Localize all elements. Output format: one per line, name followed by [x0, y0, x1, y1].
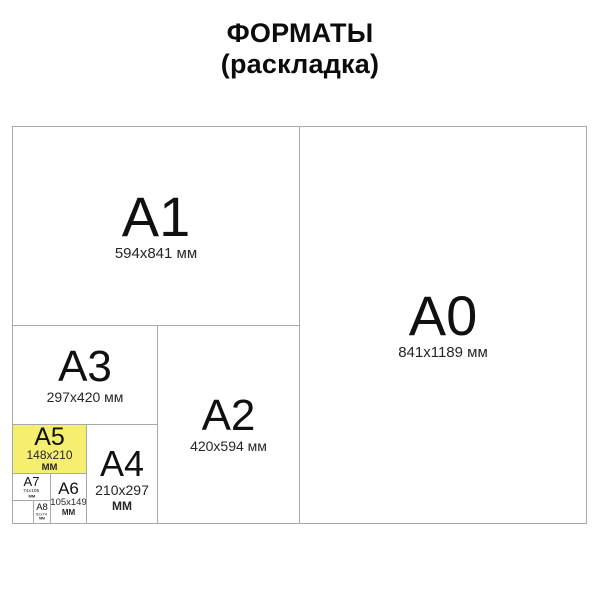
- format-box-a4: A4 210x297 ММ: [86, 424, 158, 524]
- format-label-a1: A1: [122, 189, 191, 245]
- format-box-a1: A1 594x841 мм: [12, 126, 300, 326]
- format-box-a7: A7 74x105 ММ: [12, 473, 51, 501]
- format-unit-a8: ММ: [39, 518, 45, 520]
- format-dims-a8: 52x74: [36, 513, 47, 516]
- format-label-a5: A5: [34, 425, 65, 449]
- format-unit-a6: ММ: [62, 508, 75, 517]
- format-label-a2: A2: [202, 394, 256, 438]
- format-dims-a1: 594x841 мм: [115, 245, 197, 263]
- format-label-a0: A0: [409, 288, 478, 344]
- format-dims-a0: 841x1189 мм: [398, 344, 488, 362]
- format-label-a6: A6: [58, 481, 79, 497]
- format-unit-a4: ММ: [112, 499, 132, 514]
- format-box-a6: A6 105x149 ММ: [50, 473, 87, 524]
- format-box-a3: A3 297x420 мм: [12, 325, 158, 425]
- page-title-line2: (раскладка): [0, 49, 600, 80]
- format-dims-a7: 74x105: [23, 489, 39, 493]
- format-dims-a2: 420x594 мм: [190, 438, 267, 455]
- format-box-a8: A8 52x74 ММ: [33, 500, 51, 524]
- format-label-a8: A8: [36, 503, 48, 512]
- page: ФОРМАТЫ (раскладка) A1 594x841 мм A0 841…: [0, 0, 600, 600]
- format-label-a3: A3: [58, 345, 112, 389]
- format-dims-a5: 148x210: [26, 449, 72, 462]
- format-dims-a4: 210x297: [95, 482, 149, 499]
- format-box-a2: A2 420x594 мм: [157, 325, 300, 524]
- format-box-a0: A0 841x1189 мм: [299, 126, 587, 524]
- format-unit-a7: ММ: [28, 495, 35, 498]
- format-dims-a6: 105x149: [50, 497, 86, 508]
- page-title-line1: ФОРМАТЫ: [0, 18, 600, 49]
- page-title: ФОРМАТЫ (раскладка): [0, 18, 600, 80]
- format-label-a7: A7: [24, 476, 40, 488]
- format-label-a4: A4: [100, 446, 144, 482]
- format-dims-a3: 297x420 мм: [47, 389, 124, 406]
- format-box-a5: A5 148x210 ММ: [12, 424, 87, 474]
- format-unit-a5: ММ: [42, 462, 58, 473]
